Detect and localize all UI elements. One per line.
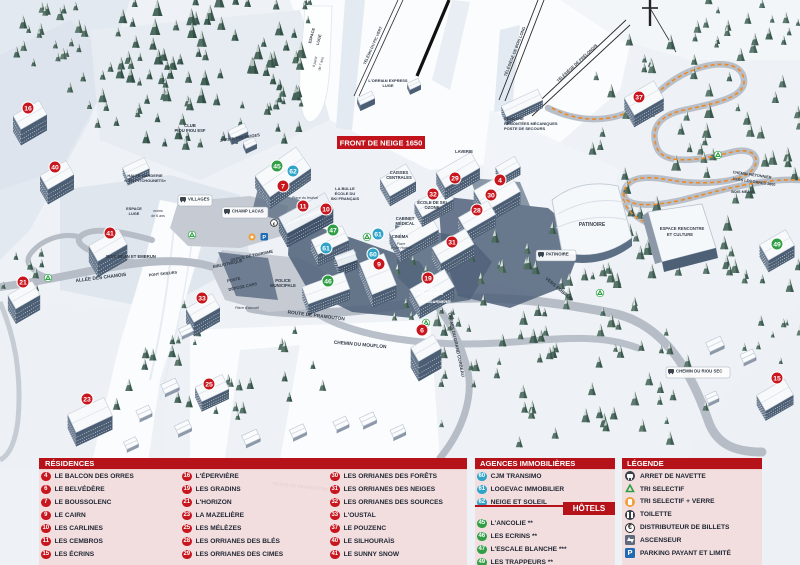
svg-text:CHAMP LACAS: CHAMP LACAS [232,209,264,214]
svg-text:60: 60 [369,251,377,258]
svg-text:6: 6 [420,327,424,334]
svg-text:moins: moins [153,209,163,213]
svg-text:46: 46 [324,278,332,285]
svg-text:CENTRALES: CENTRALES [386,175,412,180]
svg-text:29: 29 [451,175,459,182]
svg-text:11: 11 [299,203,306,210]
svg-text:30: 30 [487,192,495,199]
svg-text:40: 40 [51,164,59,171]
svg-text:41: 41 [106,230,114,237]
svg-text:47: 47 [329,227,337,234]
svg-text:Place du festival: Place du festival [292,196,318,200]
svg-text:19: 19 [424,275,432,282]
svg-text:P: P [262,235,266,241]
svg-text:GENDARMERIE: GENDARMERIE [421,299,451,304]
svg-text:23: 23 [83,396,91,403]
svg-text:CHEMIN DU RIOU SEC: CHEMIN DU RIOU SEC [676,369,722,374]
svg-text:ESPACE RENCONTRE: ESPACE RENCONTRE [660,226,705,231]
svg-text:FRONT DE NEIGE 1650: FRONT DE NEIGE 1650 [340,139,423,148]
svg-text:7: 7 [281,183,285,190]
svg-text:25: 25 [205,381,213,388]
svg-text:49: 49 [773,241,781,248]
svg-text:21: 21 [19,279,27,286]
svg-text:Place d'accueil: Place d'accueil [235,306,259,310]
svg-text:LUGE: LUGE [382,83,393,88]
svg-text:«LES PITCHOUNETS»: «LES PITCHOUNETS» [124,178,167,183]
svg-text:Émile Hodoul: Émile Hodoul [391,245,411,250]
svg-text:SÉMINAIRES: SÉMINAIRES [417,291,443,296]
svg-text:61: 61 [374,231,382,238]
svg-text:de 6 ans: de 6 ans [151,214,165,218]
svg-text:PATINOIRE: PATINOIRE [579,222,606,228]
svg-text:VILLAGES: VILLAGES [188,197,210,202]
svg-text:16: 16 [24,105,32,112]
svg-text:10: 10 [322,206,330,213]
svg-text:33: 33 [198,295,206,302]
svg-text:BOIS MÉAN ET EMBRUN: BOIS MÉAN ET EMBRUN [106,254,156,259]
svg-text:MÉDICAL: MÉDICAL [395,221,415,226]
svg-text:BOIS MÉAN: BOIS MÉAN [731,189,753,194]
svg-text:28: 28 [473,207,481,214]
svg-text:OZONE: OZONE [425,205,440,210]
svg-text:9: 9 [377,261,381,268]
svg-text:15: 15 [773,375,781,382]
svg-text:4: 4 [498,177,502,184]
svg-text:37: 37 [635,94,643,101]
svg-text:61: 61 [322,245,330,252]
svg-text:MUNICIPALE: MUNICIPALE [270,283,296,288]
svg-text:62: 62 [289,168,297,175]
svg-text:SKI FRANÇAIS: SKI FRANÇAIS [331,196,360,201]
svg-text:LUGE: LUGE [129,211,140,216]
svg-text:32: 32 [429,191,437,198]
svg-text:€: € [273,221,276,226]
svg-text:ET CULTURE: ET CULTURE [667,232,693,237]
svg-text:31: 31 [448,239,456,246]
svg-text:LAVERIE: LAVERIE [455,149,473,154]
svg-text:45: 45 [273,163,281,170]
svg-text:POSTE DE SECOURS: POSTE DE SECOURS [504,126,545,131]
svg-text:PIOU PIOU ESF: PIOU PIOU ESF [175,128,206,133]
svg-text:CINÉMA: CINÉMA [392,234,409,239]
svg-text:PATINOIRE: PATINOIRE [546,252,569,257]
